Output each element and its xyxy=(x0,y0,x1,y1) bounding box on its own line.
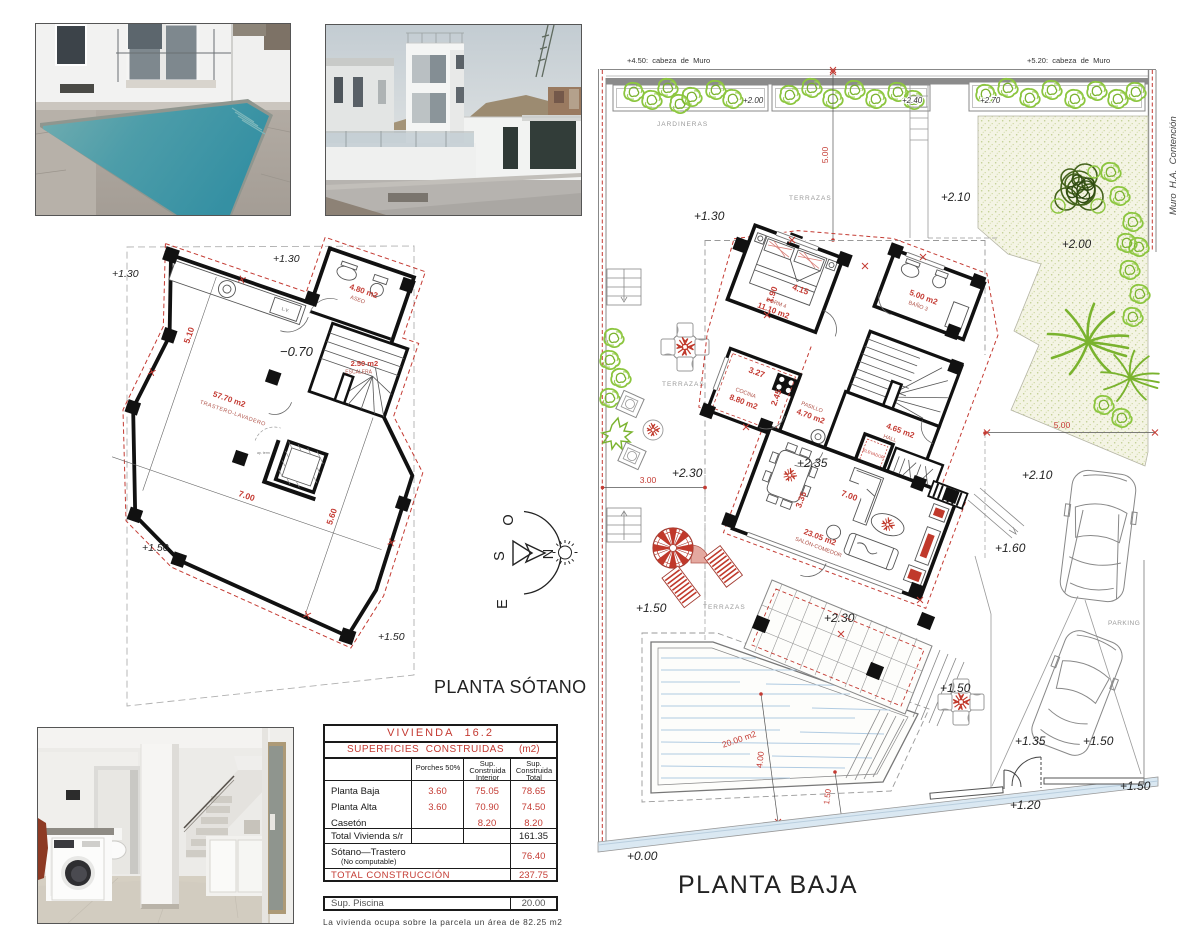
svg-text:+1.50: +1.50 xyxy=(1120,779,1151,793)
svg-text:+1.30: +1.30 xyxy=(694,209,725,223)
svg-text:+1.50: +1.50 xyxy=(940,681,971,695)
svg-text:+1.50: +1.50 xyxy=(636,601,667,615)
svg-text:TERRAZAS: TERRAZAS xyxy=(662,381,705,388)
svg-text:2.50 m2: 2.50 m2 xyxy=(351,359,379,368)
svg-text:+0.00: +0.00 xyxy=(627,849,658,863)
svg-text:+2.40: +2.40 xyxy=(902,96,923,105)
svg-text:+2.00: +2.00 xyxy=(1062,239,1092,251)
svg-text:+1.50: +1.50 xyxy=(1083,734,1114,748)
svg-text:+1.20: +1.20 xyxy=(1010,798,1041,812)
svg-text:5.00: 5.00 xyxy=(1054,420,1071,430)
svg-text:+1.35: +1.35 xyxy=(1015,734,1046,748)
svg-text:O: O xyxy=(501,514,517,525)
svg-text:+2.35: +2.35 xyxy=(797,456,828,470)
svg-text:+5.20: cabeza de Muro: +5.20: cabeza de Muro xyxy=(1027,56,1110,65)
svg-text:JARDINERAS: JARDINERAS xyxy=(657,121,708,128)
svg-text:PARKING: PARKING xyxy=(1108,620,1140,627)
svg-text:+2.10: +2.10 xyxy=(1022,468,1053,482)
svg-text:E: E xyxy=(495,599,511,609)
svg-text:TERRAZAS: TERRAZAS xyxy=(703,604,746,611)
svg-text:+2.10: +2.10 xyxy=(941,192,971,204)
svg-text:Muro H.A. Contención: Muro H.A. Contención xyxy=(1168,116,1179,215)
svg-text:+2.30: +2.30 xyxy=(672,466,703,480)
svg-text:+1.60: +1.60 xyxy=(995,541,1026,555)
svg-text:−0.70: −0.70 xyxy=(280,344,314,359)
svg-text:4.00: 4.00 xyxy=(754,751,766,769)
svg-text:+2.00: +2.00 xyxy=(743,96,764,105)
svg-text:+1.30: +1.30 xyxy=(273,253,300,265)
svg-text:+4.50: cabeza de Muro: +4.50: cabeza de Muro xyxy=(627,56,710,65)
svg-text:+1.50: +1.50 xyxy=(142,542,169,554)
svg-text:S: S xyxy=(492,551,508,561)
svg-text:5.00: 5.00 xyxy=(820,146,830,163)
svg-text:+1.30: +1.30 xyxy=(112,268,139,280)
svg-text:TERRAZAS: TERRAZAS xyxy=(789,195,832,202)
svg-text:1.50: 1.50 xyxy=(822,788,833,805)
svg-text:3.00: 3.00 xyxy=(640,475,657,485)
svg-text:N: N xyxy=(541,549,557,559)
svg-text:ESCALERA: ESCALERA xyxy=(345,370,372,376)
svg-text:ap. term: ap. term xyxy=(257,451,270,455)
svg-text:+1.50: +1.50 xyxy=(378,631,405,643)
svg-text:+2.30: +2.30 xyxy=(824,611,855,625)
svg-text:+2.70: +2.70 xyxy=(980,96,1001,105)
